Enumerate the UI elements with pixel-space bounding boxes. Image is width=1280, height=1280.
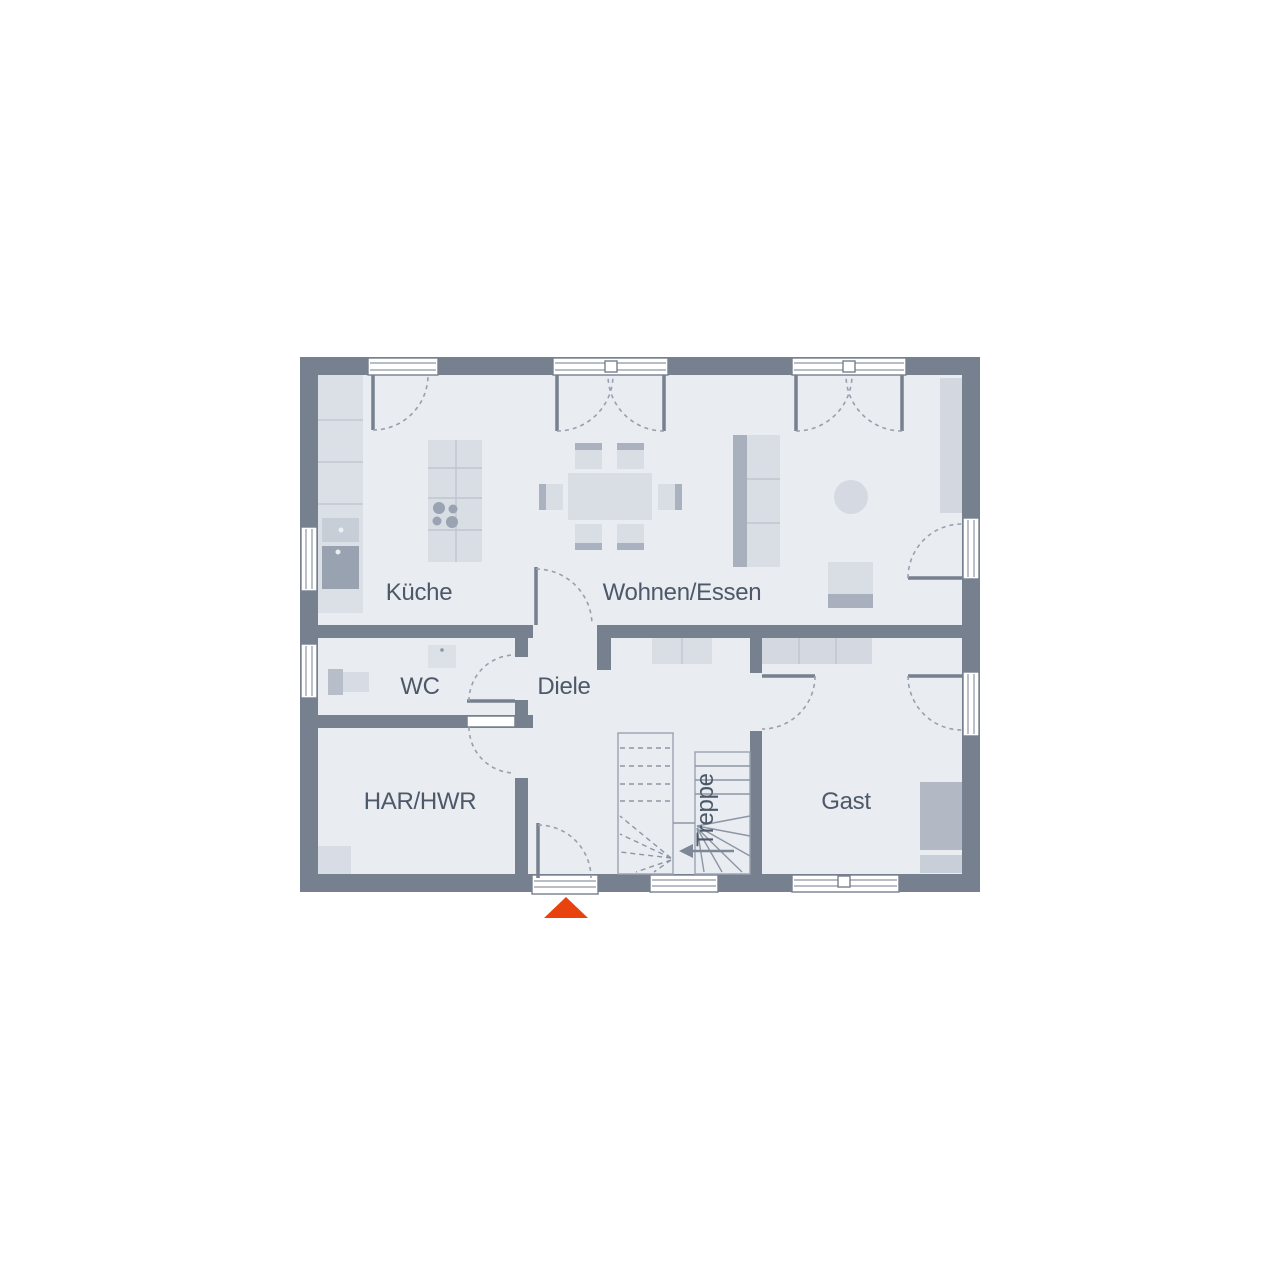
kitchen-island (428, 440, 482, 562)
floor-plan: Küche Wohnen/Essen WC Diele HAR/HWR Trep… (0, 0, 1280, 1280)
window-stairs-bottom (650, 875, 718, 892)
sofa (733, 435, 780, 567)
guest-bed (920, 782, 962, 873)
room-label-gast: Gast (821, 788, 871, 815)
french-door-living (792, 358, 906, 375)
french-door-dining (553, 358, 668, 375)
room-label-wc: WC (400, 673, 439, 700)
room-label-kueche: Küche (386, 579, 453, 606)
room-label-treppe: Treppe (692, 773, 719, 846)
window-kitchen-left (301, 527, 317, 591)
terrace-door-guest-right (963, 672, 979, 736)
wc-toilet (328, 669, 369, 695)
window-wc-left (301, 644, 317, 698)
room-label-har-hwr: HAR/HWR (364, 788, 477, 815)
round-rug (834, 480, 868, 514)
room-label-wohnen-essen: Wohnen/Essen (603, 579, 762, 606)
door-handle-icon (843, 361, 855, 372)
door-handle-icon (605, 361, 617, 372)
armchair (828, 562, 873, 608)
wall-cabinet (940, 378, 963, 513)
entrance-triangle-icon (544, 897, 588, 918)
wc-basin (428, 645, 456, 668)
dining-table (568, 473, 652, 520)
terrace-door-living-right (963, 518, 979, 579)
kitchen-oven (322, 546, 359, 589)
window-guest-bottom (792, 875, 899, 892)
room-label-diele: Diele (537, 673, 590, 700)
guest-wardrobe (762, 638, 872, 664)
window-kitchen-top (368, 358, 438, 375)
hall-sideboard (652, 638, 712, 664)
window-handle-icon (838, 876, 850, 887)
kitchen-sink (322, 518, 359, 542)
utility-appliance (318, 846, 351, 874)
entrance-door-frame (532, 875, 598, 894)
